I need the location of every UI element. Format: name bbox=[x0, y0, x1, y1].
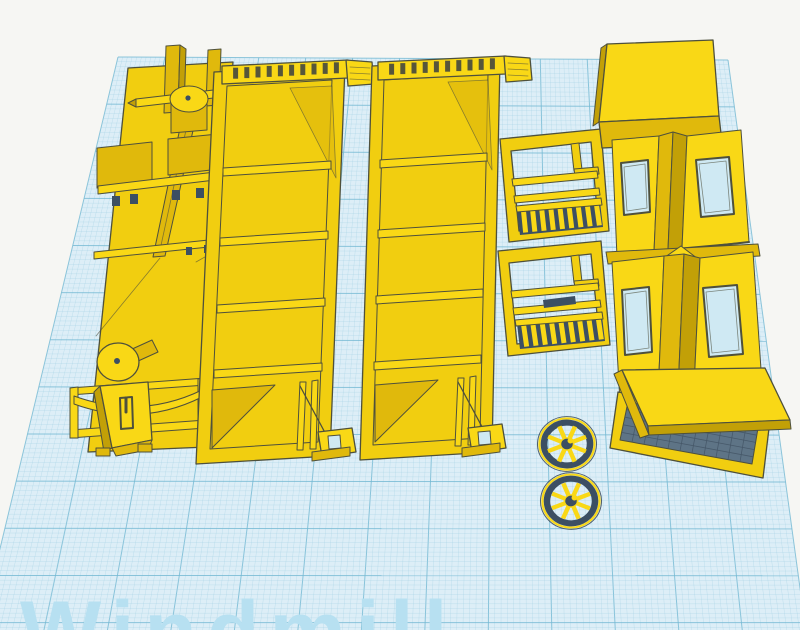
slab-top-face bbox=[622, 368, 790, 426]
part-wall-section-upper[interactable] bbox=[612, 130, 749, 257]
scene-canvas: Windmill bbox=[0, 0, 800, 630]
hub-hole bbox=[185, 95, 190, 100]
part-roof-slab[interactable] bbox=[614, 368, 791, 438]
part-roof-block[interactable] bbox=[593, 40, 722, 148]
viewport-3d[interactable]: Windmill bbox=[0, 0, 800, 630]
block-top-face bbox=[599, 40, 719, 122]
workplane-watermark: Windmill bbox=[20, 584, 458, 630]
